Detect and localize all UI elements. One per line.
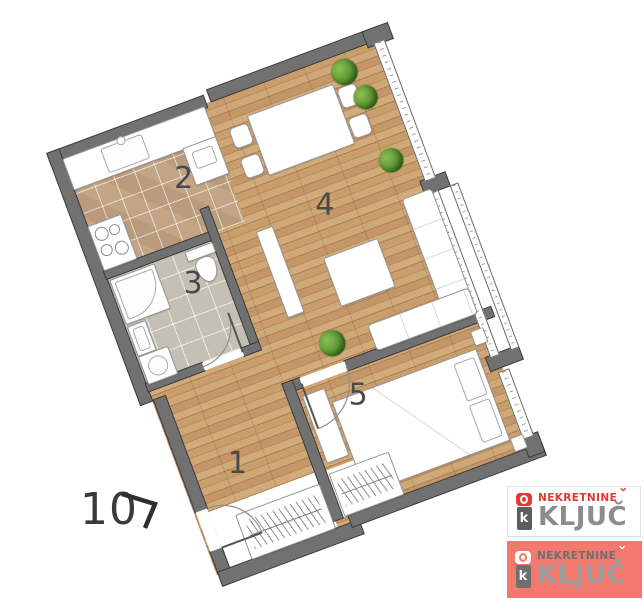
logo-wordmark: NEKRETNINE ˇ KLJUČ [537,551,627,589]
key-head [515,551,531,564]
key-stem: k [517,507,532,530]
floorplan-image: 1 2 3 4 5 10 k NEKRETNINE ˇ KLJUČ k [0,0,644,600]
caron-accent: ˇ [618,550,626,558]
caron-accent: ˇ [619,492,627,500]
logo-line2: KLJUČ [537,562,627,588]
key-stem: k [516,565,531,588]
logo-line2: KLJUČ [538,504,628,530]
agency-logo-white: k NEKRETNINE ˇ KLJUČ [507,486,641,537]
key-icon: k [516,493,532,530]
agency-logo-red: k NEKRETNINE ˇ KLJUČ [507,541,642,598]
logo-wordmark: NEKRETNINE ˇ KLJUČ [538,493,628,531]
key-head [516,493,532,506]
key-icon: k [515,551,531,588]
